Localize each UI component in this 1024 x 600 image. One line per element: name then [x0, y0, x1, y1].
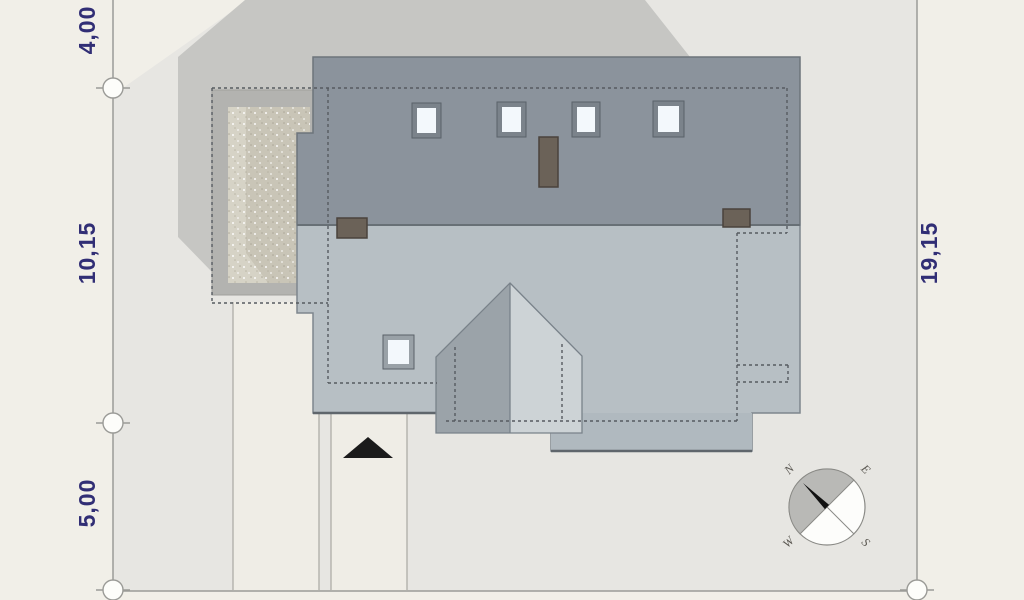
dimension-label-right: 19,15: [916, 222, 942, 285]
skylight: [383, 335, 414, 369]
skylight: [497, 102, 526, 137]
skylight-glass: [417, 108, 436, 133]
skylight-glass: [388, 340, 409, 364]
garden-path: [233, 302, 319, 591]
skylight-glass: [577, 107, 595, 132]
skylight-glass: [658, 106, 679, 132]
dimension-label-left-bottom: 5,00: [74, 479, 100, 528]
site-plan: 4,00 10,15 5,00 19,15 N E W S: [0, 0, 1024, 600]
dimension-label-left-middle: 10,15: [74, 222, 100, 285]
dimension-label-left-top: 4,00: [74, 6, 100, 55]
skylight: [572, 102, 600, 137]
skylight: [653, 101, 684, 137]
skylight-glass: [502, 107, 521, 132]
skylight: [412, 103, 441, 138]
chimney: [539, 137, 558, 187]
chimney: [723, 209, 750, 227]
chimney: [337, 218, 367, 238]
